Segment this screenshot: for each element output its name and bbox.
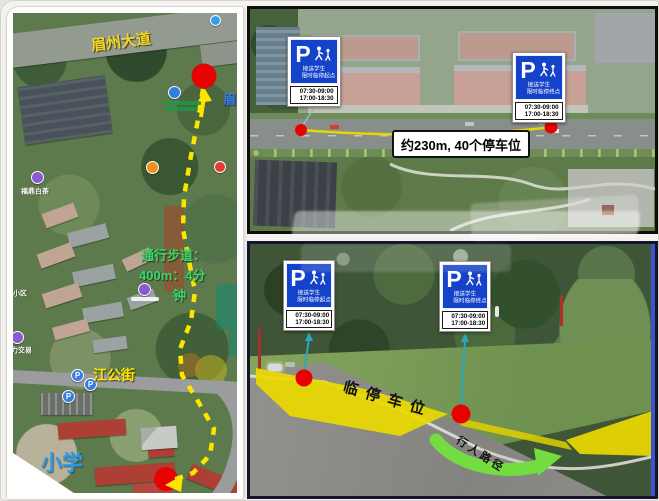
park-path bbox=[390, 164, 655, 189]
walk-note-line1: 通行步道： bbox=[141, 245, 206, 264]
time-plate: 07:30-09:00 17:00-18:30 bbox=[290, 86, 338, 104]
pedestrians-icon bbox=[308, 270, 328, 286]
bus-stop-micro-label bbox=[166, 107, 198, 111]
sign-line2: 限时临停终点 bbox=[453, 298, 477, 302]
pedestrians-icon bbox=[464, 271, 484, 287]
pointer-arrow-up-icon bbox=[461, 333, 469, 342]
walk-note-line2: 400m：4分 bbox=[139, 265, 205, 284]
satellite-map: P P P 眉州大道 眉州 通行步道： 400m：4分 钟 江公街 小学 福鼎白… bbox=[13, 13, 237, 493]
sign-panel: P 接送学生 限时临停起点 bbox=[290, 39, 338, 84]
parking-marker: P bbox=[62, 390, 75, 403]
sign-line1: 接送学生 bbox=[297, 290, 321, 294]
time-evening: 17:00-18:30 bbox=[525, 111, 554, 115]
time-morning: 07:30-09:00 bbox=[295, 312, 322, 316]
time-morning: 07:30-09:00 bbox=[451, 313, 478, 317]
poi-marker-orange bbox=[146, 161, 159, 174]
poi-marker-purple bbox=[138, 283, 151, 296]
watermark bbox=[301, 244, 511, 272]
pedestrians-icon bbox=[313, 46, 333, 62]
sign-line1: 接送学生 bbox=[453, 291, 477, 295]
pointer-arrow-up-icon bbox=[305, 332, 313, 341]
parking-area-right-wedge bbox=[566, 410, 655, 456]
road bbox=[199, 385, 237, 493]
distance-label: 约230m, 40个停车位 bbox=[401, 135, 521, 154]
poi-label-trade: 力交易 bbox=[13, 344, 32, 355]
time-evening: 17:00-18:30 bbox=[300, 95, 329, 99]
sign-pointer-line bbox=[304, 339, 309, 372]
parking-marker-letter: P bbox=[75, 371, 80, 380]
avenue-partial-label: 眉州 bbox=[223, 89, 237, 108]
poi-label-community: 小区 bbox=[13, 287, 27, 298]
parking-sign-start: P 接送学生 限时临停起点 07:30-09:00 17:00-18:30 bbox=[287, 36, 341, 107]
map-frame: P P P 眉州大道 眉州 通行步道： 400m：4分 钟 江公街 小学 福鼎白… bbox=[7, 7, 243, 499]
school-label: 小学 bbox=[41, 447, 83, 477]
sign-line1: 接送学生 bbox=[527, 82, 552, 86]
poi-marker-red bbox=[214, 161, 226, 173]
stop-dot-left bbox=[296, 370, 313, 387]
time-evening: 17:00-18:30 bbox=[295, 319, 322, 323]
street-label: 江公街 bbox=[93, 365, 135, 385]
street-panel: P 接送学生 限时临停起点 07:30-09:00 17:00-18:30 P bbox=[247, 241, 658, 499]
bus-stop-marker bbox=[168, 86, 181, 99]
time-plate: 07:30-09:00 17:00-18:30 bbox=[442, 311, 488, 329]
sign-line1: 接送学生 bbox=[302, 66, 327, 70]
time-morning: 07:30-09:00 bbox=[525, 104, 554, 108]
sign-p-icon: P bbox=[295, 43, 310, 66]
time-morning: 07:30-09:00 bbox=[300, 88, 329, 92]
bus-stop-micro-label bbox=[163, 101, 201, 105]
distance-label-box: 约230m, 40个停车位 bbox=[392, 130, 530, 158]
sign-pointer-line bbox=[461, 340, 465, 408]
parking-marker: P bbox=[71, 369, 84, 382]
stop-dot-right bbox=[452, 405, 471, 424]
parking-marker-letter: P bbox=[66, 392, 71, 401]
poi-marker-tea bbox=[31, 171, 44, 184]
pedestrians-icon bbox=[538, 62, 558, 78]
parking-sign-end: P 接送学生 限时临停终点 07:30-09:00 17:00-18:30 bbox=[512, 52, 566, 123]
poi-marker-blue bbox=[210, 15, 221, 26]
sign-line2: 限时临停起点 bbox=[302, 73, 327, 77]
time-plate: 07:30-09:00 17:00-18:30 bbox=[286, 310, 332, 328]
sign-line2: 限时临停终点 bbox=[527, 89, 552, 93]
time-evening: 17:00-18:30 bbox=[451, 320, 478, 324]
poi-label-tea: 福鼎白茶 bbox=[21, 185, 49, 196]
measure-dot-left bbox=[295, 124, 307, 136]
sign-p-icon: P bbox=[520, 59, 535, 82]
composite-canvas: P P P 眉州大道 眉州 通行步道： 400m：4分 钟 江公街 小学 福鼎白… bbox=[0, 0, 659, 501]
sign-panel: P 接送学生 限时临停终点 bbox=[515, 55, 563, 100]
poi-micro-label bbox=[131, 297, 159, 301]
pedestrian-arrow-head-icon bbox=[534, 448, 562, 476]
sign-line2: 限时临停起点 bbox=[297, 297, 321, 301]
route-start-dot bbox=[192, 64, 217, 89]
panel-blue-edge bbox=[651, 244, 655, 496]
time-plate: 07:30-09:00 17:00-18:30 bbox=[515, 102, 563, 120]
walk-note-line3: 钟 bbox=[173, 285, 186, 304]
